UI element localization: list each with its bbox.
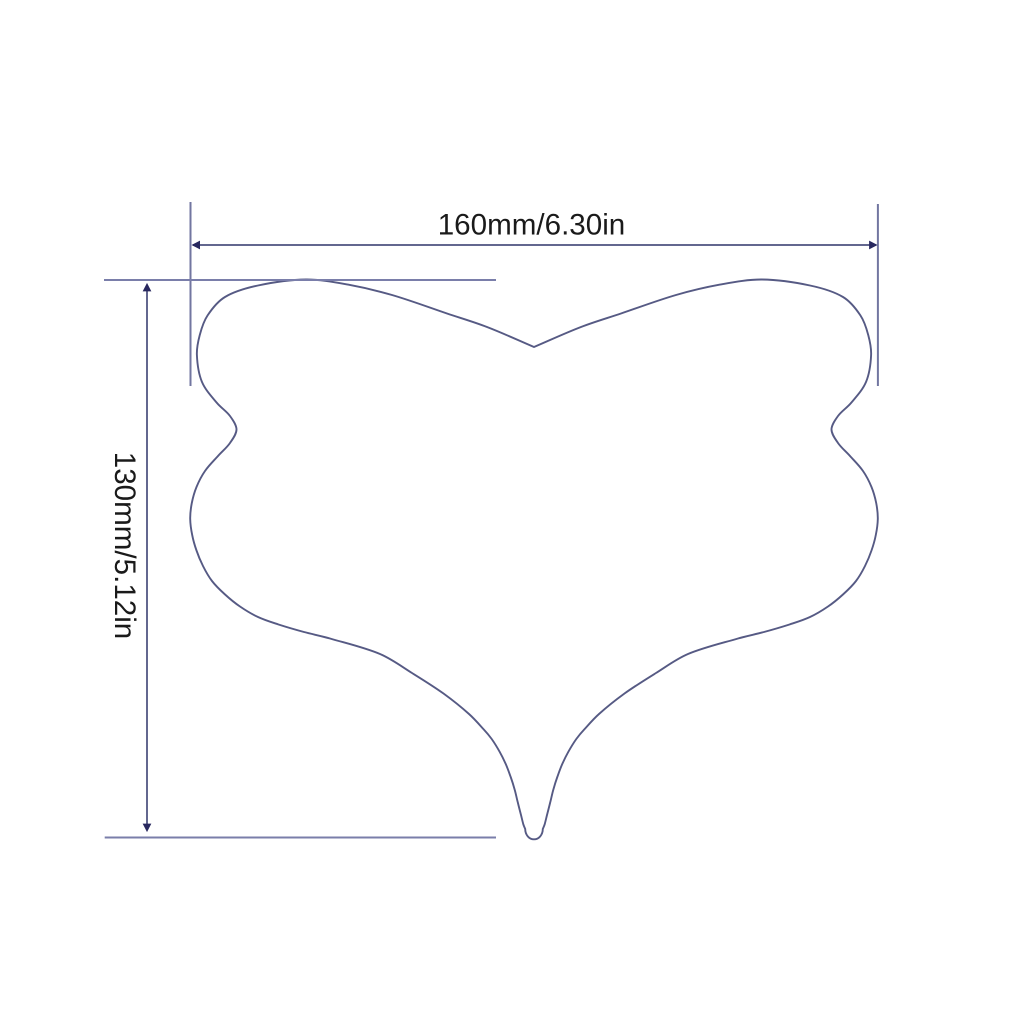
svg-text:160mm/6.30in: 160mm/6.30in (438, 209, 626, 242)
svg-text:130mm/5.12in: 130mm/5.12in (108, 452, 141, 640)
